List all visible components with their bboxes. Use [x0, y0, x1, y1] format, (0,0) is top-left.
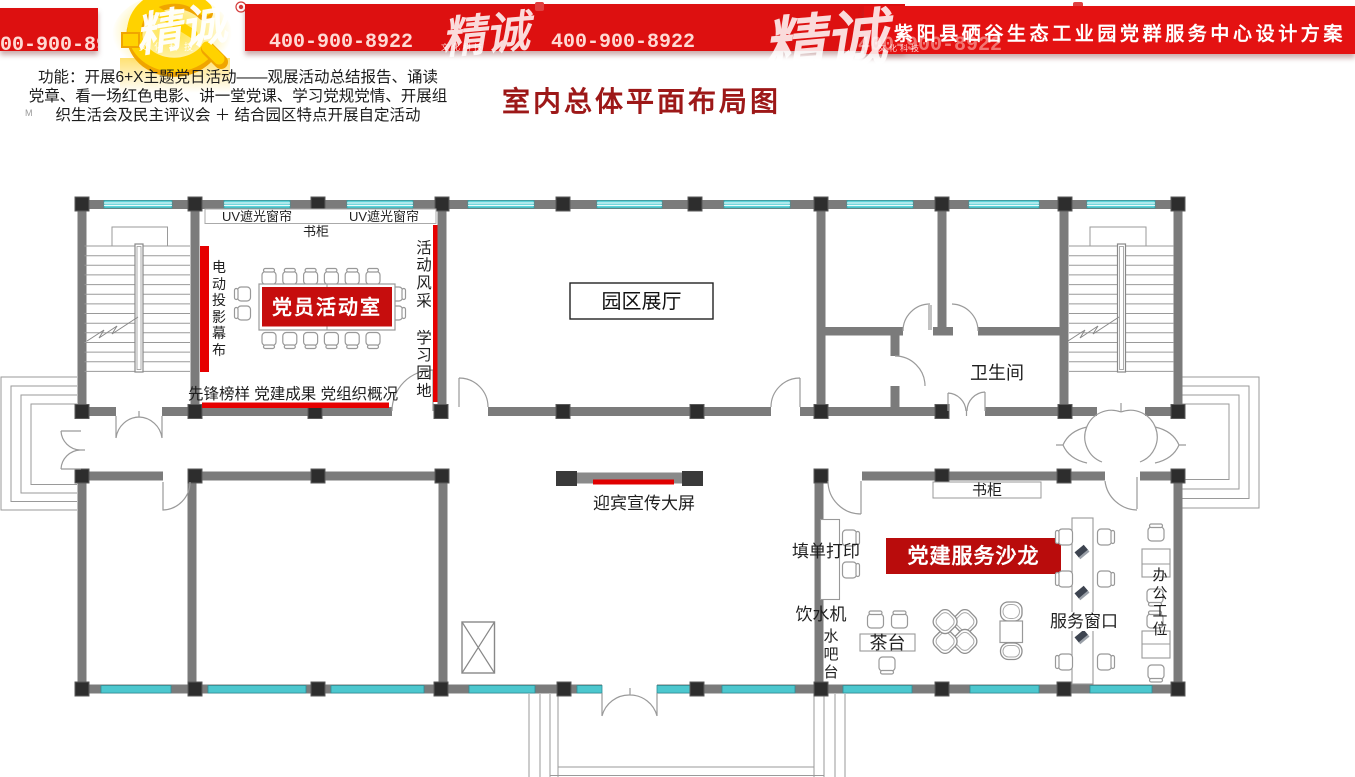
svg-text:风: 风: [416, 275, 432, 292]
svg-text:动: 动: [416, 256, 432, 274]
svg-text:位: 位: [1152, 621, 1167, 638]
svg-text:茶台: 茶台: [870, 633, 906, 653]
svg-text:党建服务沙龙: 党建服务沙龙: [908, 544, 1040, 568]
svg-text:学: 学: [416, 329, 432, 347]
svg-text:饮水机: 饮水机: [796, 605, 847, 624]
svg-text:文化科技: 文化科技: [139, 41, 199, 52]
svg-text:吧: 吧: [823, 646, 838, 663]
svg-text:办: 办: [1152, 567, 1167, 584]
svg-text:采: 采: [416, 292, 432, 310]
svg-text:填单打印: 填单打印: [792, 542, 860, 561]
svg-text:园: 园: [416, 365, 432, 382]
svg-text:布: 布: [212, 342, 226, 358]
svg-text:习: 习: [416, 347, 432, 364]
svg-text:台: 台: [823, 664, 838, 681]
svg-text:书柜: 书柜: [972, 482, 1002, 499]
svg-text:工: 工: [1152, 603, 1167, 620]
svg-text:书柜: 书柜: [303, 224, 329, 239]
svg-text:迎宾宣传大屏: 迎宾宣传大屏: [593, 494, 695, 513]
svg-text:地: 地: [416, 382, 432, 400]
svg-text:服务窗口: 服务窗口: [1050, 612, 1118, 631]
svg-text:UV遮光窗帘: UV遮光窗帘: [222, 209, 292, 224]
svg-text:幕: 幕: [212, 325, 226, 341]
svg-text:动: 动: [212, 276, 226, 292]
svg-text:活: 活: [416, 239, 432, 257]
svg-text:党员活动室: 党员活动室: [272, 295, 382, 319]
svg-text:投: 投: [212, 292, 226, 308]
svg-text:UV遮光窗帘: UV遮光窗帘: [349, 209, 419, 224]
svg-text:先锋榜样 党建成果 党组织概况: 先锋榜样 党建成果 党组织概况: [188, 385, 398, 403]
svg-text:电: 电: [212, 259, 226, 275]
svg-text:卫生间: 卫生间: [970, 363, 1024, 383]
svg-text:水: 水: [823, 628, 838, 645]
svg-text:园区展厅: 园区展厅: [602, 291, 682, 313]
svg-text:影: 影: [212, 309, 226, 325]
svg-text:公: 公: [1152, 585, 1167, 602]
